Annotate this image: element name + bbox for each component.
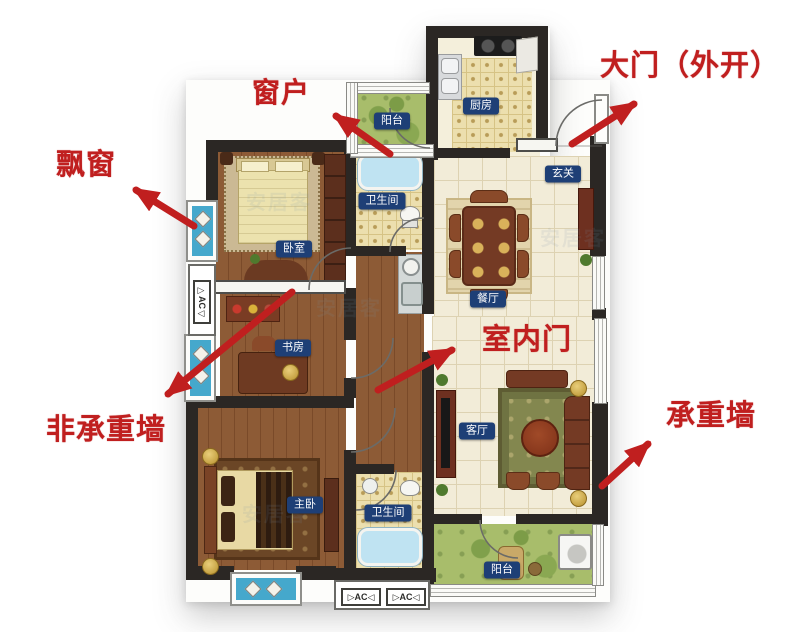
balcony-railing [430, 584, 596, 597]
annotation-main-door: 大门（外开） [600, 52, 780, 81]
floorplan-screenshot: ▷AC◁ ▷AC◁ ▷AC◁ 安居客 安居客 安居客 安居客 [0, 0, 810, 632]
toilet-tank [402, 220, 418, 228]
pillow [221, 476, 235, 506]
balcony-window [356, 82, 430, 94]
plant [436, 374, 448, 386]
wall [422, 148, 434, 256]
desk-lamp [282, 364, 299, 381]
room-label-master: 主卧 [287, 497, 323, 514]
sink [362, 478, 378, 494]
sink-bowl [441, 58, 459, 74]
dining-chair [449, 214, 461, 242]
ac-unit-bottom: ▷AC◁ ▷AC◁ [334, 580, 430, 610]
ac-label: ▷AC◁ [341, 588, 381, 606]
watermark: 安居客 [316, 292, 382, 321]
washing-machine [558, 534, 592, 570]
wall [296, 566, 336, 580]
wash-basin [402, 258, 420, 276]
dining-chair [517, 214, 529, 242]
plant [250, 254, 260, 264]
wall [186, 398, 198, 570]
wall [422, 256, 434, 314]
wall [206, 140, 352, 152]
room-label-living: 客厅 [459, 423, 495, 440]
bedside-lamp [202, 558, 219, 575]
main-door-leaf [594, 94, 609, 144]
wall-entry-side [516, 138, 558, 152]
room-label-dining: 餐厅 [470, 291, 506, 308]
balcony-window [346, 82, 358, 154]
pillow [221, 512, 235, 542]
annotation-bay-window: 飘窗 [56, 151, 116, 180]
stove [474, 36, 522, 56]
pillow [275, 161, 303, 172]
wall [344, 450, 356, 570]
dining-chair [470, 190, 508, 203]
balcony-window [592, 524, 604, 586]
room-label-bathroom-bottom: 卫生间 [365, 505, 412, 522]
sink-bowl [441, 78, 459, 94]
tv [441, 398, 450, 468]
bedside-lamp [202, 448, 219, 465]
wall [426, 514, 482, 524]
wall [344, 378, 356, 398]
ac-label: ▷AC◁ [386, 588, 426, 606]
coffee-table [521, 419, 559, 457]
pillow [241, 161, 269, 172]
annotation-non-load-bearing-wall: 非承重墙 [46, 416, 166, 445]
plant [436, 484, 448, 496]
wall [426, 148, 510, 158]
mop-sink [401, 282, 423, 306]
sofa [564, 396, 590, 490]
annotation-interior-door: 室内门 [482, 326, 572, 355]
side-table [528, 562, 542, 576]
annotation-load-bearing-wall: 承重墙 [666, 402, 756, 431]
master-headboard [204, 466, 217, 554]
master-dresser [324, 478, 339, 552]
window [592, 256, 605, 310]
wall [516, 514, 604, 524]
wall [422, 514, 434, 586]
bathtub [358, 528, 422, 566]
wall [422, 352, 434, 516]
room-label-bathroom-top: 卫生间 [359, 193, 406, 210]
room-label-study: 书房 [275, 340, 311, 357]
plant [580, 254, 592, 266]
armchair [506, 472, 530, 490]
desk-chair [252, 336, 276, 351]
kitchen-counter [516, 36, 538, 73]
window [350, 144, 434, 158]
wall-load-bearing [592, 402, 608, 526]
window [594, 318, 607, 404]
dining-chair [517, 250, 529, 278]
room-label-kitchen: 厨房 [463, 98, 499, 115]
sofa-back [506, 370, 568, 388]
annotation-window: 窗户 [252, 79, 310, 107]
watermark: 安居客 [540, 222, 606, 251]
armchair [536, 472, 560, 490]
bathtub [358, 154, 422, 190]
room-label-bedroom: 卧室 [276, 241, 312, 258]
ac-label: ▷AC◁ [193, 280, 211, 324]
dining-chair [449, 250, 461, 278]
wall [206, 140, 218, 204]
toilet [400, 480, 420, 496]
room-label-balcony-bottom: 阳台 [484, 562, 520, 579]
room-label-balcony-top: 阳台 [374, 113, 410, 130]
room-label-foyer: 玄关 [545, 166, 581, 183]
wardrobe [324, 154, 346, 282]
side-table [570, 490, 587, 507]
nightstand [220, 152, 233, 165]
dining-table [462, 206, 516, 286]
ac-unit-left: ▷AC◁ [188, 264, 216, 336]
watermark: 安居客 [246, 186, 312, 215]
side-table [570, 380, 587, 397]
bookshelf [226, 296, 280, 322]
